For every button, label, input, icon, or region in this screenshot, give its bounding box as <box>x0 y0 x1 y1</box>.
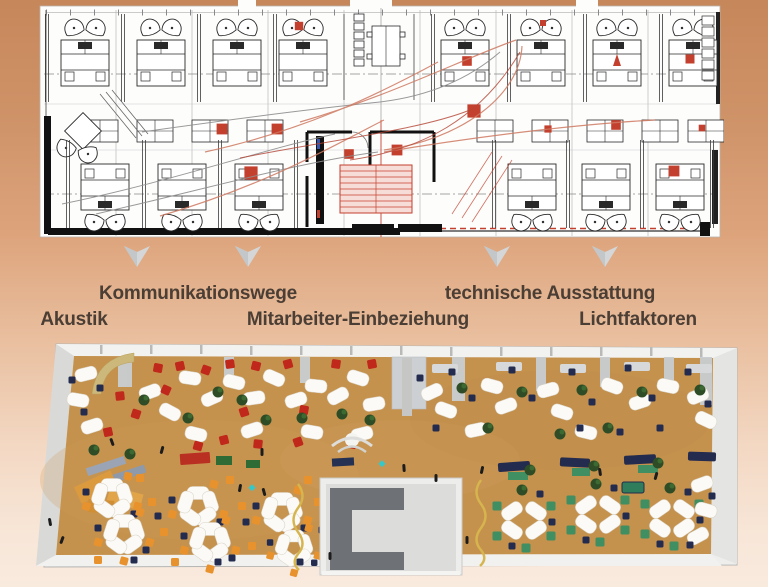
label-lichtfaktoren: Lichtfaktoren <box>579 309 697 331</box>
down-arrow-icon <box>123 246 151 268</box>
down-arrow-icon <box>234 246 262 268</box>
down-arrow-icon <box>591 246 619 268</box>
building-core <box>320 478 462 575</box>
label-akustik: Akustik <box>40 309 107 331</box>
render-3d-floor-plan <box>28 341 740 579</box>
label-mitarbeiter-einbeziehung: Mitarbeiter-Einbeziehung <box>247 309 469 331</box>
down-arrow-icon <box>483 246 511 268</box>
figure-canvas: Kommunikationswege technische Ausstattun… <box>0 0 768 587</box>
cad-floor-plan <box>38 0 724 240</box>
label-technische-ausstattung: technische Ausstattung <box>445 283 655 305</box>
label-kommunikationswege: Kommunikationswege <box>99 283 297 305</box>
